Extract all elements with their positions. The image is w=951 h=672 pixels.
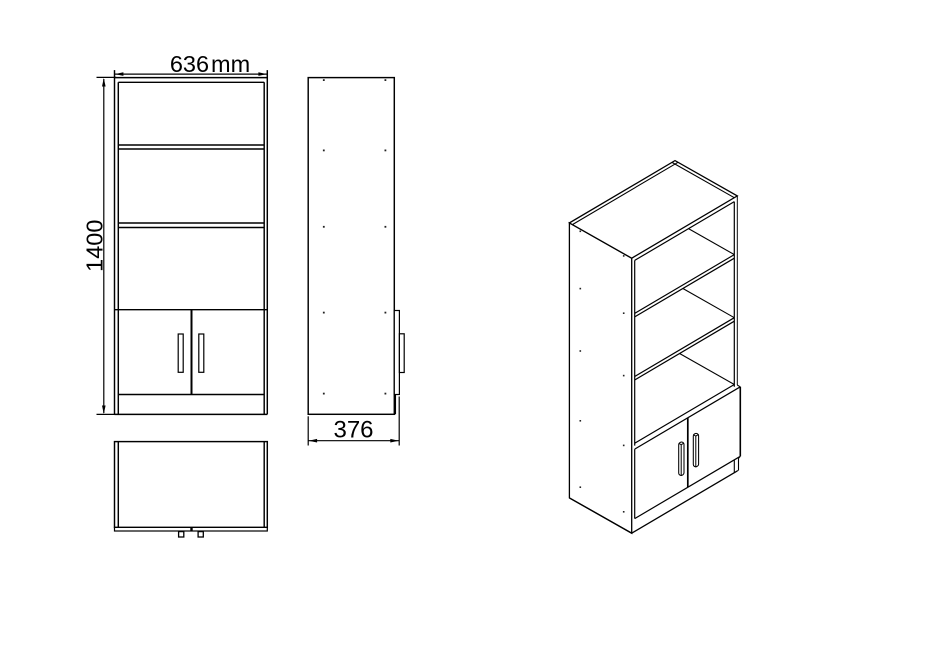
svg-text:1400: 1400: [81, 220, 107, 272]
svg-text:636 mm: 636 mm: [170, 51, 250, 77]
svg-text:376: 376: [333, 417, 373, 444]
